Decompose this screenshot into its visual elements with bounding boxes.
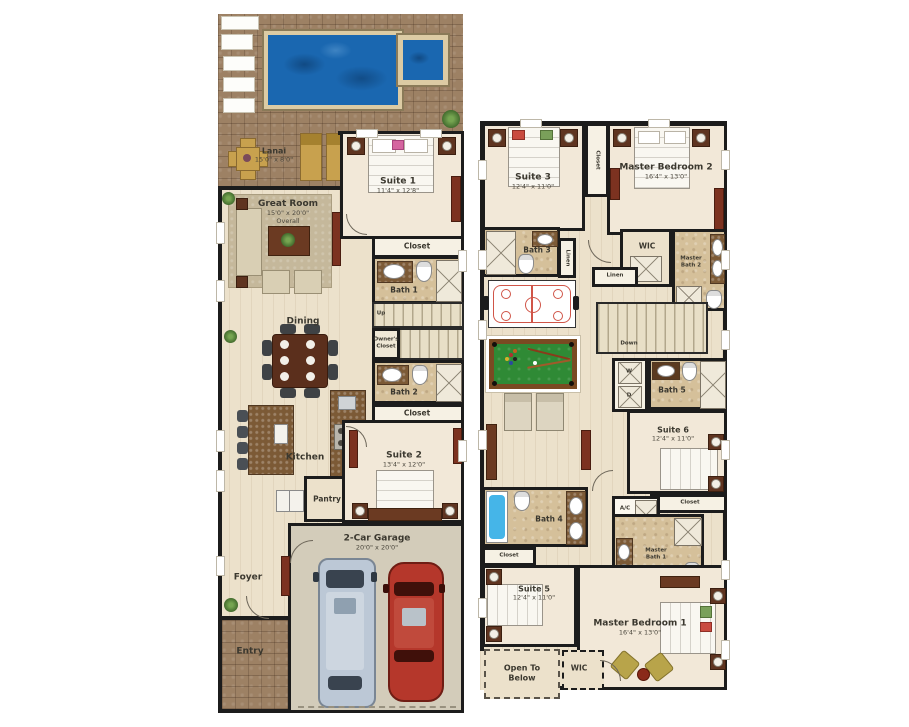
window <box>520 119 542 128</box>
dryer-label: D <box>627 393 632 400</box>
window <box>721 250 730 270</box>
window <box>478 430 487 450</box>
suv-rear-window <box>328 676 362 690</box>
window <box>356 129 378 138</box>
air-hockey-table <box>488 280 576 328</box>
bath2-label: Bath 2 <box>390 388 418 397</box>
dresser <box>451 176 461 222</box>
plant <box>222 192 235 205</box>
place-setting <box>306 372 315 381</box>
lanai-label: Lanai 15'0" x 8'0" <box>255 146 293 163</box>
window <box>458 440 467 462</box>
round-table <box>637 668 650 681</box>
billiard-ball <box>513 349 517 353</box>
foyer-text: Foyer <box>234 573 262 584</box>
suite5-label: Suite 5 12'4" x 11'0" <box>513 584 555 601</box>
linen2-label: Linen <box>607 273 624 280</box>
lounge-chair <box>223 77 255 92</box>
bath3-text: Bath 3 <box>523 246 551 255</box>
kitchen-label: Kitchen <box>286 453 325 464</box>
armchair <box>262 270 290 294</box>
bath1-label: Bath 1 <box>390 286 418 295</box>
window <box>478 598 487 618</box>
window <box>721 440 730 460</box>
plant <box>224 598 238 612</box>
sink <box>537 234 553 245</box>
master-bedroom1-label: Master Bedroom 1 16'4" x 13'0" <box>593 619 686 638</box>
pillow <box>664 131 686 144</box>
linen1-text: Linen <box>564 250 571 267</box>
car-windshield <box>394 582 434 596</box>
wall <box>218 186 344 190</box>
place-setting <box>306 356 315 365</box>
window <box>420 129 442 138</box>
pillow <box>638 131 660 144</box>
loft-seat <box>536 393 564 431</box>
bar-stool <box>237 458 248 470</box>
pantry-label: Pantry <box>313 495 341 504</box>
great-room-label: Great Room 15'0" x 20'0" Overall <box>258 199 318 225</box>
sink <box>383 264 405 279</box>
lounge-chair <box>223 56 255 71</box>
dresser <box>660 576 700 588</box>
master-bedroom2-dims: 16'4" x 13'0" <box>645 174 687 182</box>
air-hockey-end <box>573 296 579 310</box>
suv-sunroof <box>334 598 356 614</box>
wic2-label: WIC <box>639 242 656 251</box>
shower <box>674 518 702 546</box>
shower <box>486 231 516 275</box>
owners-closet-label: Owner's Closet <box>373 336 398 349</box>
island-sink <box>274 424 288 444</box>
master-bedroom1-dims: 16'4" x 13'0" <box>619 630 661 638</box>
lanai-dims: 15'0" x 8'0" <box>255 156 293 164</box>
suite6-label: Suite 6 12'4" x 11'0" <box>652 425 694 442</box>
wic2-text: WIC <box>639 242 656 251</box>
bath4-closet-label: Closet <box>499 553 518 560</box>
closet2-text: Closet <box>404 409 430 418</box>
bath2-text: Bath 2 <box>390 388 418 397</box>
closet6-text: Closet <box>680 500 699 507</box>
lamp <box>355 506 365 516</box>
pool <box>268 35 398 105</box>
place-setting <box>280 356 289 365</box>
window <box>458 250 467 272</box>
window <box>721 640 730 660</box>
sink <box>569 522 583 540</box>
sink <box>382 368 402 382</box>
console-table <box>281 556 290 596</box>
great-room-note: Overall <box>276 217 299 225</box>
deck-bench <box>221 34 253 50</box>
down-label: Down <box>620 341 637 348</box>
bath5-text: Bath 5 <box>658 386 686 395</box>
dining-chair <box>280 388 296 398</box>
loft-seat <box>504 393 532 431</box>
billiard-ball <box>509 361 513 365</box>
window <box>721 330 730 350</box>
car-mirror <box>383 584 389 593</box>
media-console <box>486 424 497 480</box>
bed-throw <box>512 130 525 140</box>
ac-text: A/C <box>620 506 630 513</box>
place-setting <box>280 340 289 349</box>
pocket <box>569 381 574 386</box>
shower <box>700 361 726 409</box>
suite2-label: Suite 2 13'4" x 12'0" <box>383 451 425 470</box>
pool-table <box>486 336 580 392</box>
bath3-label: Bath 3 <box>523 246 551 255</box>
spa <box>403 40 443 80</box>
dining-chair <box>262 364 272 380</box>
sink <box>569 497 583 515</box>
suite3-label: Suite 3 12'4" x 11'0" <box>512 173 554 192</box>
stairs-down <box>596 302 708 354</box>
ac-label: A/C <box>620 506 630 513</box>
window <box>216 280 225 302</box>
kitchen-sink <box>338 396 356 410</box>
stairs-up <box>372 302 464 328</box>
window <box>216 470 225 492</box>
patio-chair <box>240 170 256 180</box>
closet3-text: Closet <box>594 150 601 169</box>
window <box>721 560 730 580</box>
dining-chair <box>262 340 272 356</box>
toilet <box>416 261 432 282</box>
bed-throw <box>392 140 404 150</box>
bed-throw <box>700 622 712 632</box>
master-bath1-l2: Bath 1 <box>646 554 666 561</box>
car-rear-window <box>394 650 434 662</box>
window <box>478 160 487 180</box>
owners-closet-l1: Owner's <box>373 336 398 343</box>
bath4-label: Bath 4 <box>535 515 563 524</box>
up-label: Up <box>377 311 385 318</box>
lamp <box>489 629 499 639</box>
air-hockey-faceoff <box>553 289 563 299</box>
pocket <box>492 381 497 386</box>
bar-stool <box>237 426 248 438</box>
lamp <box>617 133 627 143</box>
pocket <box>492 342 497 347</box>
window <box>216 430 225 452</box>
bed <box>376 470 434 512</box>
place-setting <box>306 340 315 349</box>
lamp <box>492 133 502 143</box>
open-to-below-label: Open To Below <box>504 663 540 682</box>
dresser <box>714 188 724 234</box>
toilet <box>706 290 722 309</box>
lamp <box>711 479 721 489</box>
toilet <box>682 362 697 381</box>
suite5-dims: 12'4" x 11'0" <box>513 594 555 602</box>
lamp <box>564 133 574 143</box>
bar-stool <box>237 442 248 454</box>
pillow <box>404 139 428 153</box>
toilet <box>514 491 530 511</box>
pantry-text: Pantry <box>313 495 341 504</box>
suv-windshield <box>326 570 364 588</box>
foyer-label: Foyer <box>234 573 262 584</box>
dining-label: Dining <box>287 317 320 328</box>
window <box>216 556 225 576</box>
air-hockey-faceoff <box>501 289 511 299</box>
open-to-below-l2: Below <box>508 673 535 683</box>
dryer-text: D <box>627 393 632 400</box>
stairs-up-lower <box>398 328 464 360</box>
patio-centerpiece <box>243 154 251 162</box>
garage-door <box>298 706 456 708</box>
hall-cabinet <box>581 430 591 470</box>
floor-plan-canvas: Lanai 15'0" x 8'0" Great Room 15'0" x 20… <box>0 0 909 727</box>
window <box>478 250 487 270</box>
table-plant <box>281 233 295 247</box>
suite3-closet-label: Closet <box>594 150 601 169</box>
dining-chair <box>304 388 320 398</box>
lamp <box>351 141 361 151</box>
lamp <box>489 572 499 582</box>
suite1-label: Suite 1 11'4" x 12'8" <box>377 177 419 196</box>
refrigerator <box>276 490 304 512</box>
bath1-text: Bath 1 <box>390 286 418 295</box>
bath5-label: Bath 5 <box>658 386 686 395</box>
linen1-label: Linen <box>564 250 571 267</box>
suite6-closet-label: Closet <box>680 500 699 507</box>
dining-chair <box>328 364 338 380</box>
window <box>648 119 670 128</box>
suite1-closet-label: Closet <box>404 242 430 251</box>
car-sunroof <box>402 608 426 626</box>
master-bedroom2-label: Master Bedroom 2 16'4" x 13'0" <box>619 163 712 182</box>
place-setting <box>280 372 289 381</box>
entry-label: Entry <box>236 647 263 658</box>
down-text: Down <box>620 341 637 348</box>
linen2-text: Linen <box>607 273 624 280</box>
garage-label: 2-Car Garage 20'0" x 20'0" <box>344 534 411 553</box>
armchair <box>294 270 322 294</box>
lamp <box>713 591 723 601</box>
lamp <box>442 141 452 151</box>
suite3-dims: 12'4" x 11'0" <box>512 184 554 192</box>
air-hockey-end <box>483 296 489 310</box>
lamp <box>711 437 721 447</box>
closet-text: Closet <box>404 242 430 251</box>
lounge-chair <box>223 98 255 113</box>
entry-porch <box>222 620 288 709</box>
air-hockey-faceoff <box>553 311 563 321</box>
side-table <box>236 198 248 210</box>
dining-chair <box>328 340 338 356</box>
wic1-label: WIC <box>571 664 588 673</box>
bed-throw <box>540 130 553 140</box>
plant <box>442 110 460 128</box>
bar-stool <box>237 410 248 422</box>
car-mirror <box>439 584 445 593</box>
master-bath2-label: Master Bath 2 <box>680 255 702 268</box>
suv-mirror <box>313 572 319 582</box>
hall-closet-label: Closet <box>404 409 430 418</box>
washer-text: W <box>626 369 632 376</box>
entry-text: Entry <box>236 647 263 658</box>
lamp <box>445 506 455 516</box>
up-text: Up <box>377 311 385 318</box>
washer-label: W <box>626 369 632 376</box>
lamp <box>696 133 706 143</box>
deck-bench <box>221 16 259 30</box>
air-hockey-center-circle <box>525 297 541 313</box>
bed-throw <box>700 606 712 618</box>
sink <box>618 544 630 560</box>
headboard <box>368 508 442 521</box>
wic1-text: WIC <box>571 664 588 673</box>
suite1-dims: 11'4" x 12'8" <box>377 188 419 196</box>
garage-dims: 20'0" x 20'0" <box>356 545 398 553</box>
open-to-below-l1: Open To <box>504 663 540 673</box>
plant <box>224 330 237 343</box>
toilet <box>518 254 534 274</box>
air-hockey-faceoff <box>501 311 511 321</box>
shower <box>436 364 462 402</box>
master-bath2-l1: Master <box>680 255 702 262</box>
pocket <box>569 342 574 347</box>
side-table <box>236 276 248 288</box>
suv-mirror <box>371 572 377 582</box>
billiard-ball <box>505 357 509 361</box>
master-bath1-label: Master Bath 1 <box>645 547 667 560</box>
window <box>721 150 730 170</box>
master-bath2-l2: Bath 2 <box>681 262 701 269</box>
bath4-text: Bath 4 <box>535 515 563 524</box>
suite2-dims: 13'4" x 12'0" <box>383 462 425 470</box>
sink <box>657 365 675 377</box>
kitchen-text: Kitchen <box>286 453 325 464</box>
owners-closet-l2: Closet <box>376 343 395 350</box>
bathtub-water <box>489 495 505 539</box>
billiard-ball <box>513 357 517 361</box>
window <box>216 222 225 244</box>
lanai-lounger <box>300 133 322 181</box>
toilet <box>412 365 428 385</box>
window <box>478 320 487 340</box>
suite6-dims: 12'4" x 11'0" <box>652 435 694 443</box>
master-bath1-l1: Master <box>645 547 667 554</box>
billiard-ball <box>509 353 513 357</box>
closet4-text: Closet <box>499 553 518 560</box>
dining-text: Dining <box>287 317 320 328</box>
